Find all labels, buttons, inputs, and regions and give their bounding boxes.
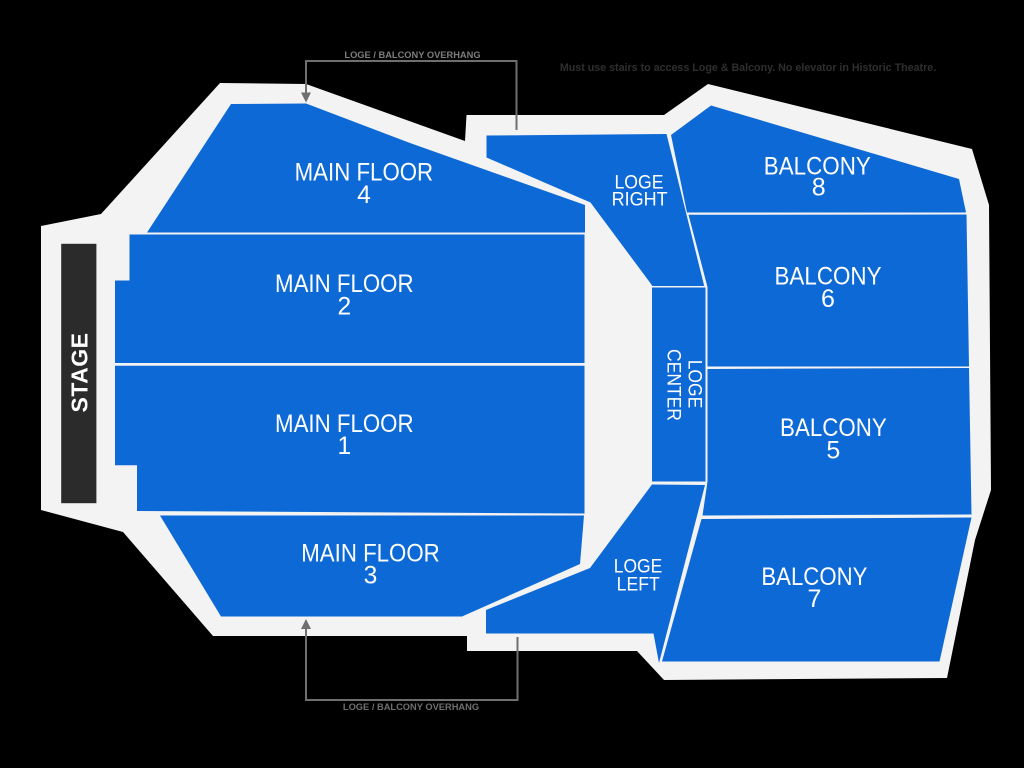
svg-text:Must use stairs to access Loge: Must use stairs to access Loge & Balcony…: [560, 62, 936, 74]
svg-text:7: 7: [807, 585, 821, 613]
svg-text:LOGE / BALCONY OVERHANG: LOGE / BALCONY OVERHANG: [344, 50, 480, 60]
svg-text:LOGE: LOGE: [684, 360, 705, 409]
svg-text:5: 5: [826, 436, 840, 464]
svg-text:LOGE / BALCONY OVERHANG: LOGE / BALCONY OVERHANG: [343, 702, 479, 712]
svg-text:LEFT: LEFT: [617, 575, 660, 596]
svg-text:6: 6: [821, 285, 835, 313]
svg-text:STAGE: STAGE: [67, 332, 93, 412]
svg-text:RIGHT: RIGHT: [612, 190, 668, 211]
svg-text:8: 8: [812, 174, 826, 202]
svg-text:4: 4: [357, 182, 371, 209]
svg-text:2: 2: [337, 293, 351, 320]
svg-text:3: 3: [364, 563, 378, 590]
svg-text:CENTER: CENTER: [662, 349, 683, 421]
svg-text:1: 1: [337, 433, 351, 460]
